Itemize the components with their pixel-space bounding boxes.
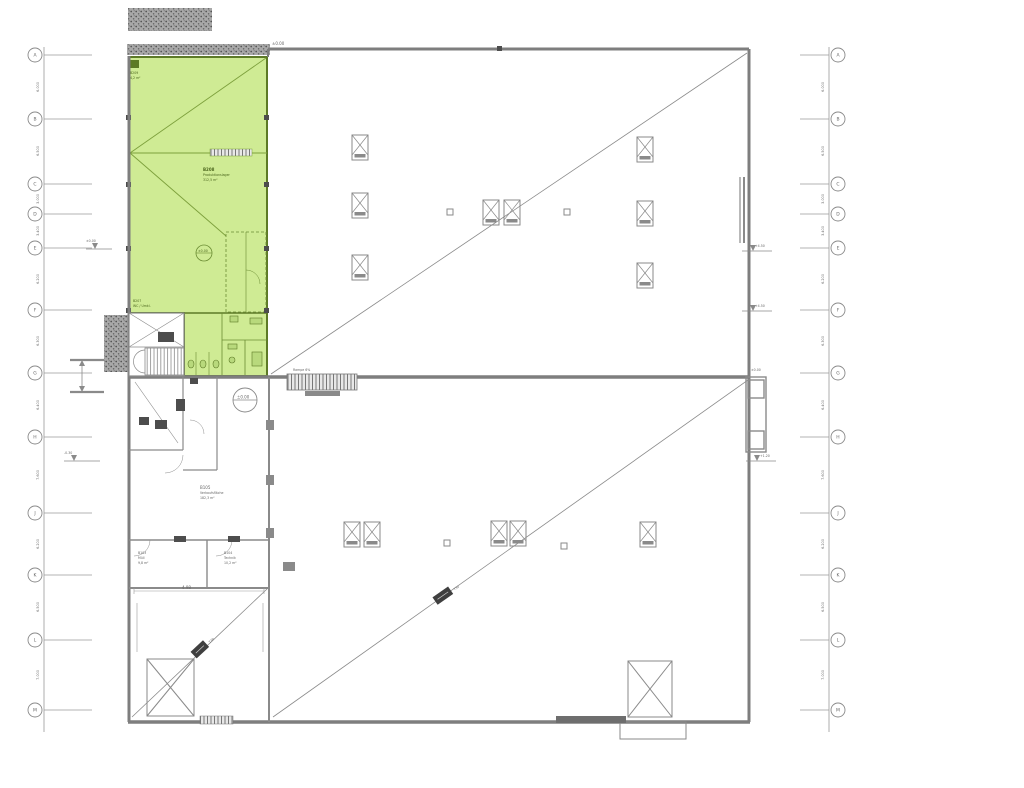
grid-label: H	[836, 435, 839, 441]
green-zone-top-wall-hatch	[127, 44, 270, 55]
svg-text:Produktionslager: Produktionslager	[203, 173, 231, 177]
svg-text:±0.00: ±0.00	[751, 368, 761, 372]
ramp-note: Rampe 6%	[293, 368, 310, 372]
room-fixtures	[139, 378, 240, 542]
column-symbol	[510, 521, 526, 546]
small-column-square	[561, 543, 567, 549]
svg-text:B104: B104	[224, 551, 232, 555]
exterior-dock-stoop	[620, 722, 686, 739]
svg-text:4.98: 4.98	[182, 585, 191, 590]
grid-dimension: 6.200	[36, 274, 40, 284]
stair-block	[129, 313, 184, 376]
structural-columns	[344, 135, 656, 549]
hall-diagonal-lower	[273, 380, 748, 717]
grid-label: D	[33, 212, 37, 218]
column-symbol	[637, 201, 653, 226]
column-symbol	[352, 135, 368, 160]
column-symbol	[352, 193, 368, 218]
svg-text:Verkaufsfläche: Verkaufsfläche	[200, 491, 223, 495]
room-label-b105: B105 Verkaufsfläche 182,3 m²	[200, 485, 223, 500]
wall-pilasters	[266, 420, 295, 571]
grid-dimension: 6.200	[36, 539, 40, 549]
stair-flight	[145, 348, 184, 375]
grid-dimension: 6.200	[821, 539, 825, 549]
floor-plan-page: ABCDEFGHJKLM6.0006.5003.0003.4006.2006.3…	[0, 0, 1024, 788]
room-block-left	[129, 377, 295, 722]
column-symbol	[344, 522, 360, 547]
svg-text:182,3 m²: 182,3 m²	[200, 496, 215, 500]
grille-symbol	[210, 149, 252, 156]
grid-label: B	[836, 117, 839, 123]
grid-label: H	[33, 435, 36, 441]
small-column-square	[444, 540, 450, 546]
svg-text:+4.50: +4.50	[755, 304, 765, 308]
svg-text:WC / Umkl.: WC / Umkl.	[133, 304, 151, 308]
section-marker	[70, 360, 104, 392]
grid-dimension: 3.400	[36, 226, 40, 236]
grid-label: G	[836, 371, 840, 377]
grid-dimension: 6.500	[821, 602, 825, 612]
level-text-main: ±0.00	[237, 395, 250, 400]
platform-bottom-left	[147, 659, 194, 716]
column-symbol	[352, 255, 368, 280]
svg-text:312,5 m²: 312,5 m²	[203, 178, 218, 182]
grid-dimension: 6.000	[36, 82, 40, 92]
svg-text:T30: T30	[207, 637, 215, 645]
sectional-door-right	[740, 177, 744, 243]
svg-text:+4.50: +4.50	[755, 244, 765, 248]
svg-text:-0.30: -0.30	[64, 451, 72, 455]
svg-text:B209: B209	[130, 71, 138, 75]
level-text-green: ±0.00	[198, 249, 208, 253]
floor-plan-drawing: ABCDEFGHJKLM6.0006.5003.0003.4006.2006.3…	[0, 0, 1024, 788]
grid-dimension: 6.200	[821, 274, 825, 284]
grid-label: E	[837, 246, 840, 252]
platform-bottom-right	[620, 661, 686, 739]
grid-label: B	[33, 117, 36, 123]
svg-text:±0.00: ±0.00	[86, 239, 96, 243]
grid-label: G	[33, 371, 37, 377]
svg-text:10,2 m²: 10,2 m²	[224, 561, 237, 565]
small-column-square	[447, 209, 453, 215]
svg-text:9,8 m²: 9,8 m²	[138, 561, 149, 565]
grid-dimension: 6.300	[821, 336, 825, 346]
top-wall-tick	[497, 46, 502, 51]
column-symbol	[364, 522, 380, 547]
bottom-wall-dark-segment	[556, 716, 626, 723]
dimension-bottom-room: 4.98	[134, 585, 264, 652]
svg-text:Müll: Müll	[138, 556, 145, 560]
small-column-square	[564, 209, 570, 215]
column-symbol	[640, 522, 656, 547]
grid-label: F	[837, 308, 840, 314]
grid-dimension: 7.000	[36, 670, 40, 680]
diagonal-tag-room: T30	[191, 634, 216, 658]
zone-entry-symbol	[130, 60, 139, 68]
grid-label: J	[836, 511, 838, 517]
grid-dimension: 3.000	[36, 194, 40, 204]
grid-dimension: 6.500	[36, 146, 40, 156]
grid-axis-right: ABCDEFGHJKLM6.0006.5003.0003.4006.2006.3…	[800, 47, 845, 732]
grid-dimension: 6.500	[821, 146, 825, 156]
top-level-note: ±0.00	[272, 41, 285, 46]
level-marker-main: ±0.00	[233, 388, 257, 412]
grid-dimension: 7.000	[821, 670, 825, 680]
grid-label: C	[836, 182, 839, 188]
exterior-canopy-hatch	[128, 8, 212, 31]
grid-dimension: 6.300	[36, 336, 40, 346]
svg-text:+1.20: +1.20	[760, 454, 770, 458]
grid-dimension: 7.600	[36, 470, 40, 480]
grid-label: F	[34, 308, 37, 314]
exterior-stair-hatch	[104, 315, 128, 372]
room-label-b103: B103 Müll 9,8 m²	[138, 551, 149, 565]
grid-dimension: 6.400	[36, 400, 40, 410]
grid-label: C	[33, 182, 36, 188]
grid-label: D	[836, 212, 840, 218]
column-symbol	[637, 137, 653, 162]
svg-text:B208: B208	[203, 167, 215, 172]
grid-dimension: 3.400	[821, 226, 825, 236]
grid-label: M	[836, 708, 840, 714]
svg-text:B207: B207	[133, 299, 141, 303]
svg-text:B103: B103	[138, 551, 146, 555]
column-symbol	[504, 200, 520, 225]
grid-dimension: 6.500	[36, 602, 40, 612]
grid-label: J	[33, 511, 35, 517]
svg-text:4,2 m²: 4,2 m²	[130, 76, 141, 80]
room-label-b104: B104 Technik 10,2 m²	[223, 551, 237, 565]
column-symbol	[491, 521, 507, 546]
grid-dimension: 3.000	[821, 194, 825, 204]
grid-label: M	[33, 708, 37, 714]
svg-text:T30: T30	[452, 585, 460, 592]
bottom-wall-hatch	[200, 716, 233, 724]
grid-dimension: 6.000	[821, 82, 825, 92]
column-symbol	[637, 263, 653, 288]
grid-label: E	[34, 246, 37, 252]
grid-dimension: 6.400	[821, 400, 825, 410]
diagonal-tag-lower: T30	[432, 581, 460, 604]
divider-ramp	[287, 374, 357, 396]
svg-text:Technik: Technik	[223, 556, 236, 560]
stair-fixture	[158, 332, 174, 342]
svg-text:B105: B105	[200, 485, 211, 490]
column-symbol	[483, 200, 499, 225]
grid-dimension: 7.600	[821, 470, 825, 480]
